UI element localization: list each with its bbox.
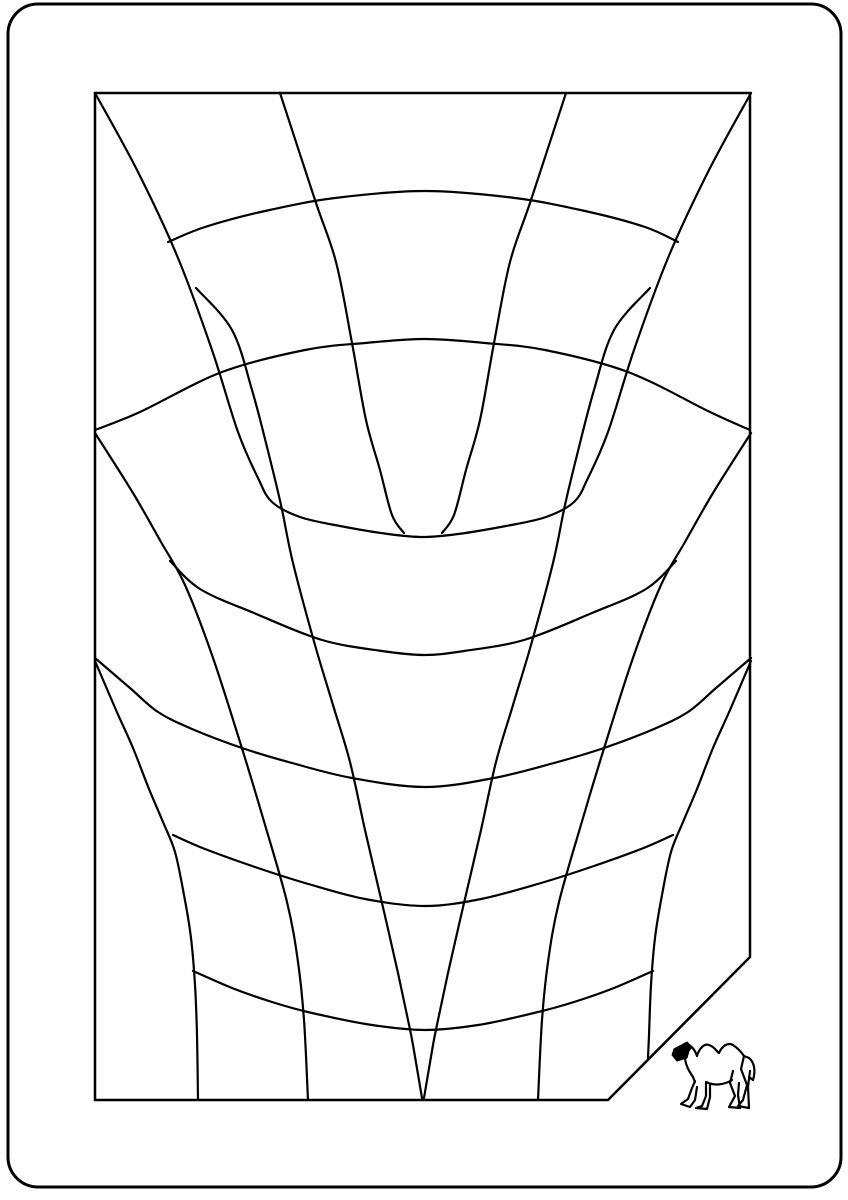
figure-background xyxy=(0,0,848,1200)
figure-page xyxy=(0,0,848,1200)
plot-figure xyxy=(0,0,848,1200)
